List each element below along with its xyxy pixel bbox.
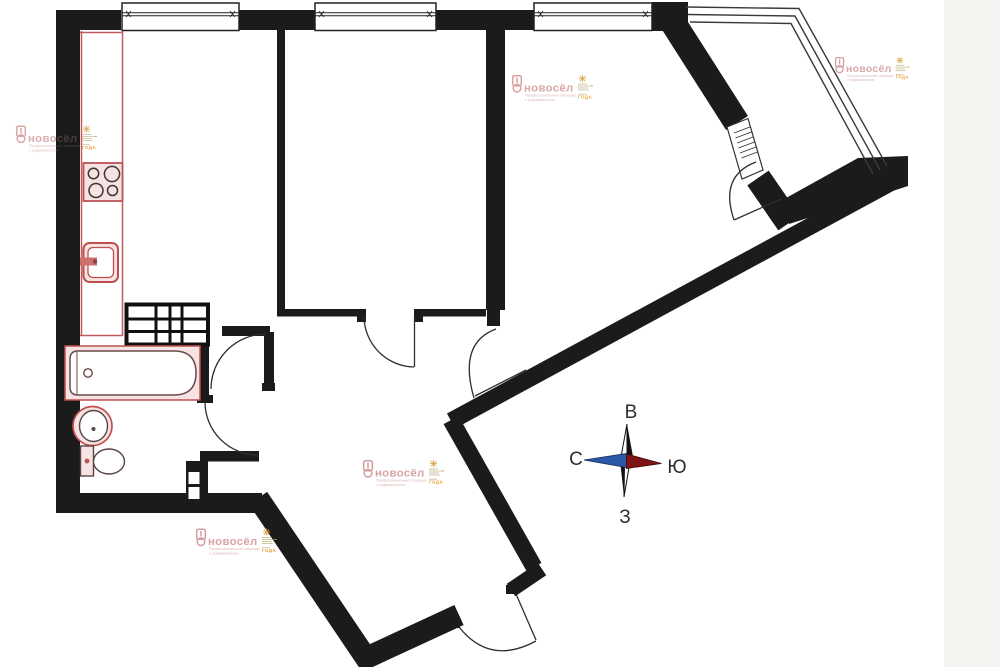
svg-text:Ю: Ю — [667, 457, 686, 478]
svg-text:З: З — [619, 507, 630, 528]
svg-text:В: В — [625, 402, 638, 423]
svg-text:С: С — [569, 449, 583, 470]
